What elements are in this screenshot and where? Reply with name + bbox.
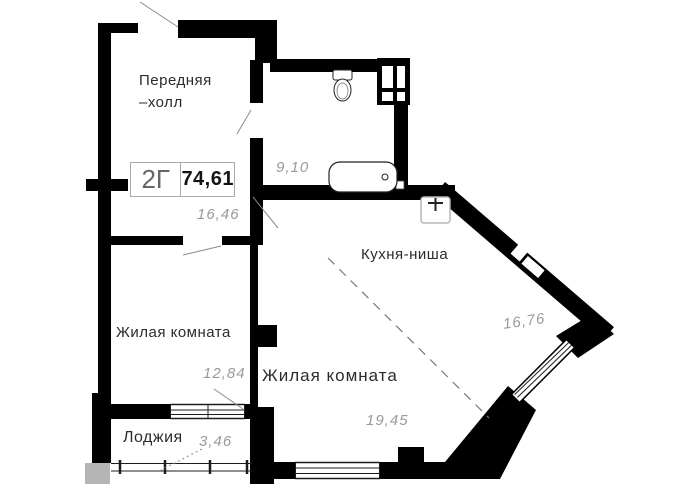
hall-label-line1: Передняя xyxy=(139,72,212,89)
center-wall xyxy=(250,245,258,407)
bottom-wall-left xyxy=(250,462,295,479)
leader-line-loggia xyxy=(161,449,202,470)
hall-bathroom-wall-upper xyxy=(250,60,263,103)
loggia-wall-right xyxy=(245,404,258,419)
bathtub-icon xyxy=(329,162,397,192)
hall-area: 16,46 xyxy=(197,206,240,223)
hall-label-line2: –холл xyxy=(139,94,183,111)
loggia-label: Лоджия xyxy=(123,429,183,447)
top-wall-right-segment xyxy=(178,20,258,38)
floor-plan: Передняя –холл 2Г 74,61 16,46 9,10 Кухня… xyxy=(0,0,700,484)
left-wall-stub xyxy=(86,179,128,191)
kitchen-zone-divider xyxy=(328,258,489,418)
unit-stamp: 2Г 74,61 xyxy=(130,162,235,197)
hall-room-wall-left xyxy=(108,236,183,245)
unit-type: 2Г xyxy=(131,163,181,196)
living-room-left-label: Жилая комната xyxy=(116,324,231,341)
hall-room-wall-right xyxy=(222,236,263,245)
leader-line-area-left-room xyxy=(214,389,243,409)
bathroom-door-swing xyxy=(237,110,251,134)
living-room-main-label: Жилая комната xyxy=(262,366,398,386)
toilet-icon xyxy=(333,70,352,101)
living-room-main-area: 19,45 xyxy=(366,412,409,429)
bathroom-area: 9,10 xyxy=(276,159,309,176)
sink-icon xyxy=(421,197,450,223)
room-door-swing xyxy=(183,246,221,255)
entrance-door-line xyxy=(140,2,178,27)
floor-plan-drawing xyxy=(0,0,700,484)
slab-corner xyxy=(85,463,110,484)
loggia-glazing xyxy=(111,460,252,474)
kitchen-label: Кухня-ниша xyxy=(361,246,448,263)
bottom-wall-pier xyxy=(398,447,424,462)
lower-diagonal-wall xyxy=(380,386,536,479)
window-main-room xyxy=(295,462,380,479)
top-step-block xyxy=(255,20,277,63)
loggia-wall-left xyxy=(111,404,170,419)
loggia-area: 3,46 xyxy=(199,433,232,450)
bathroom-top-wall xyxy=(270,59,382,72)
center-wall-pilaster xyxy=(258,325,277,347)
total-area: 74,61 xyxy=(181,163,234,196)
top-wall-left-segment xyxy=(98,23,138,33)
shaft-block xyxy=(377,58,410,105)
living-room-left-area: 12,84 xyxy=(203,365,246,382)
bay-window xyxy=(515,343,572,398)
window-left-room xyxy=(170,404,245,419)
